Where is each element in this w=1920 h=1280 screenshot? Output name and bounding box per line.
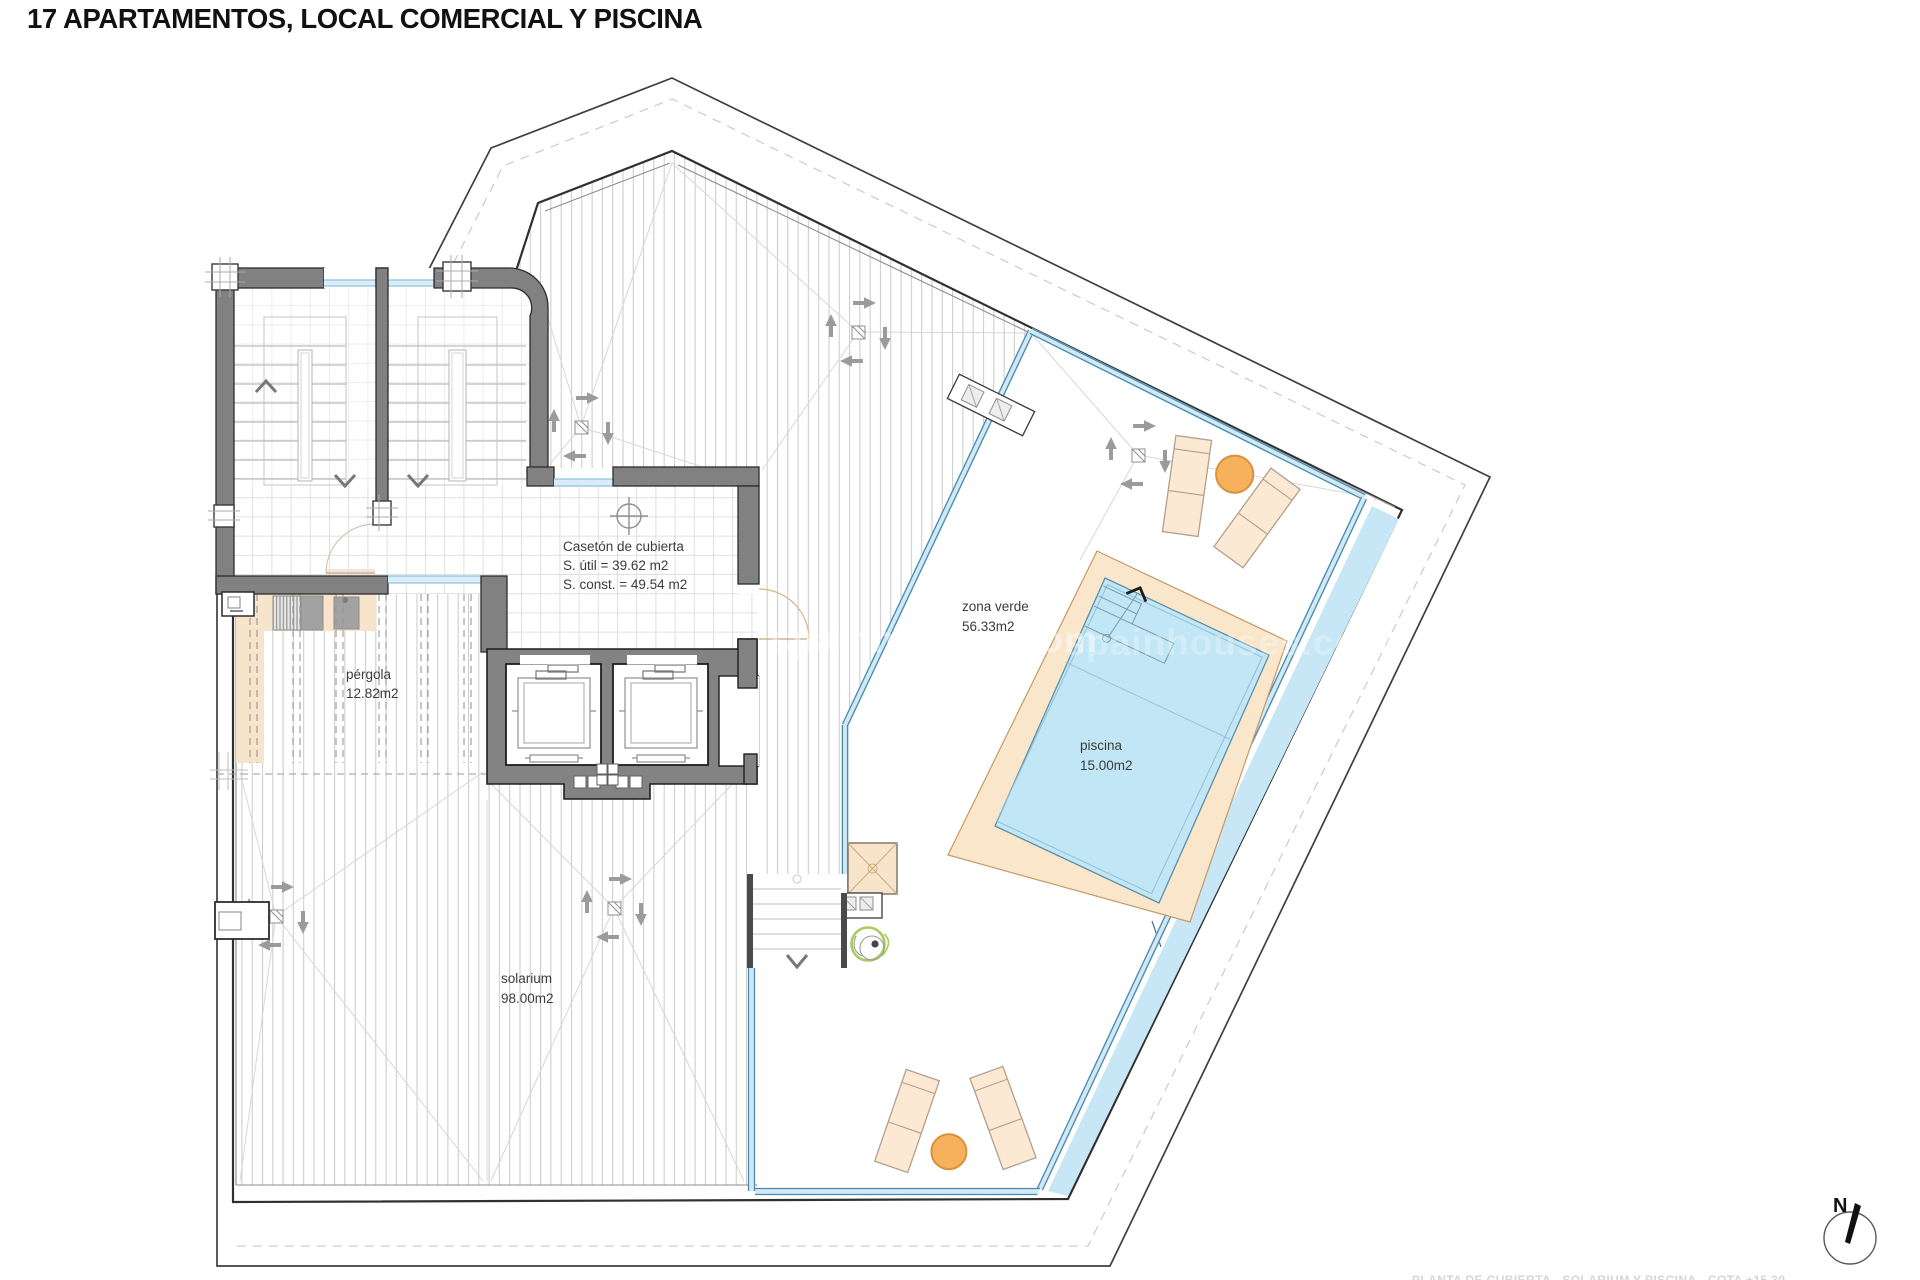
svg-text:spainhouses.com: spainhouses.com — [1064, 622, 1392, 663]
svg-text:S. const. = 49.54 m2: S. const. = 49.54 m2 — [563, 577, 687, 592]
svg-text:zona verde: zona verde — [962, 599, 1029, 614]
svg-text:PLANTA DE CUBIERTA - SOLARIUM: PLANTA DE CUBIERTA - SOLARIUM Y PISCINA … — [1412, 1273, 1785, 1280]
svg-text:solarium: solarium — [501, 971, 552, 986]
svg-text:12.82m2: 12.82m2 — [346, 686, 399, 701]
svg-text:98.00m2: 98.00m2 — [501, 991, 554, 1006]
svg-text:piscina: piscina — [1080, 738, 1123, 753]
svg-text:N: N — [1833, 1195, 1847, 1217]
svg-text:Casetón de cubierta: Casetón de cubierta — [563, 539, 684, 554]
svg-text:15.00m2: 15.00m2 — [1080, 758, 1133, 773]
svg-text:pérgola: pérgola — [346, 667, 392, 682]
svg-text:spainhouses.com: spainhouses.com — [770, 619, 1098, 660]
svg-text:S. útil = 39.62 m2: S. útil = 39.62 m2 — [563, 558, 668, 573]
svg-text:17 APARTAMENTOS, LOCAL COMERCI: 17 APARTAMENTOS, LOCAL COMERCIAL Y PISCI… — [27, 3, 703, 34]
